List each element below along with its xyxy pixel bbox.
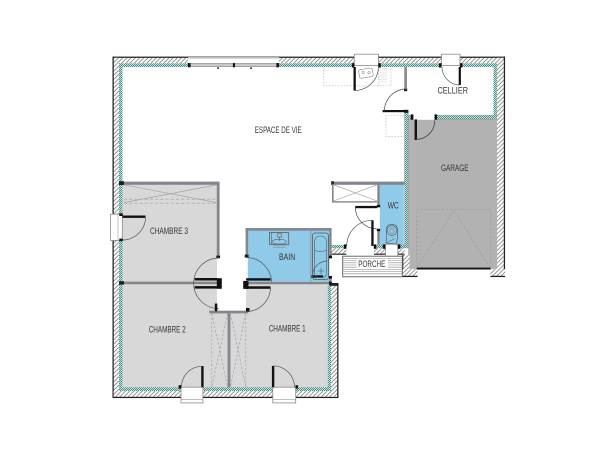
svg-text:CHAMBRE 1: CHAMBRE 1 — [269, 324, 306, 334]
svg-text:CHAMBRE 3: CHAMBRE 3 — [150, 226, 188, 236]
svg-text:ESPACE DE VIE: ESPACE DE VIE — [255, 125, 302, 135]
svg-text:CELLIER: CELLIER — [438, 86, 469, 96]
svg-text:GARAGE: GARAGE — [441, 163, 469, 173]
svg-text:WC: WC — [388, 201, 399, 211]
svg-text:CHAMBRE 2: CHAMBRE 2 — [149, 325, 186, 335]
svg-text:BAIN: BAIN — [279, 252, 295, 262]
svg-text:PORCHE: PORCHE — [358, 259, 385, 269]
